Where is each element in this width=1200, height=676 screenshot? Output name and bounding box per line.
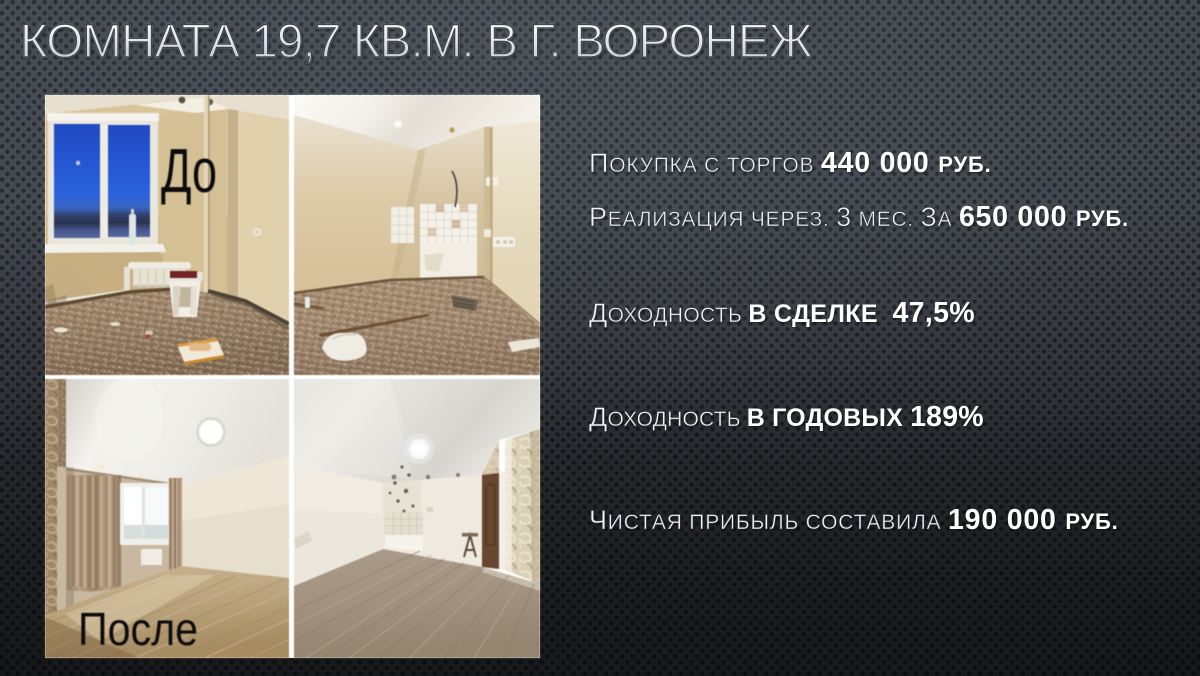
svg-text:До: До [161,137,217,206]
svg-text:После: После [78,603,198,655]
